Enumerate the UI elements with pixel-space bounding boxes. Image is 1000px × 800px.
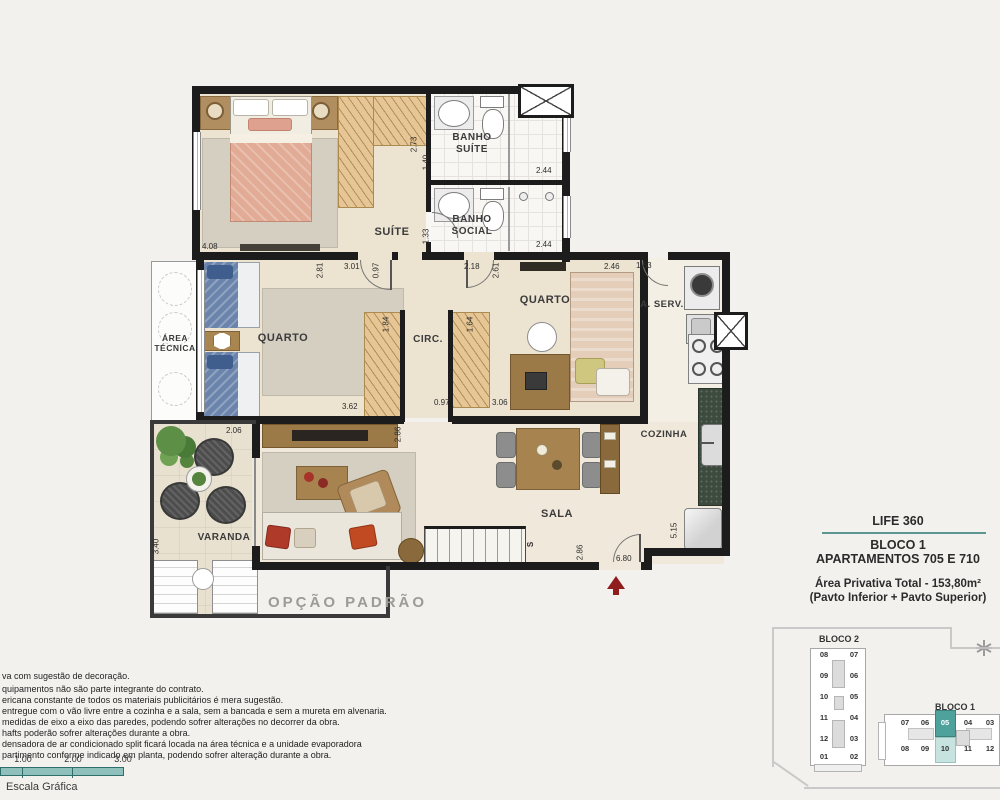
scale-bar — [0, 767, 124, 776]
private-area-text: Área Privativa Total - 153,80m² — [800, 578, 996, 590]
keyplan-core — [834, 696, 844, 710]
table-decor — [304, 472, 314, 482]
dim: 2.18 — [464, 262, 480, 271]
shower-partition — [508, 187, 510, 251]
quarto2-sideboard — [520, 262, 566, 271]
keyplan-unit: 11 — [960, 744, 976, 753]
room-label-varanda: VARANDA — [189, 532, 259, 544]
dim: 5.15 — [669, 523, 678, 539]
suite-pillow — [272, 99, 308, 116]
kitchen-faucet — [700, 442, 714, 444]
dining-chair — [496, 432, 516, 458]
keyplan-core — [832, 660, 845, 688]
room-label-sala: SALA — [522, 508, 592, 521]
option-label: OPÇÃO PADRÃO — [268, 594, 427, 611]
shower-head-icon — [519, 192, 528, 201]
quarto2-pillow — [596, 368, 630, 396]
room-label-quarto2: QUARTO — [510, 294, 580, 307]
shower-partition — [508, 94, 510, 180]
stairs-direction-label: S — [526, 542, 535, 547]
toilet-tank — [480, 188, 504, 200]
wall — [644, 548, 730, 556]
shaft-duct — [714, 312, 748, 350]
suite-sheet-fold — [230, 134, 312, 143]
dining-chair — [582, 462, 602, 488]
plant — [156, 426, 186, 456]
disclaimer-line: entregue com o vão livre entre a cozinha… — [2, 706, 387, 716]
dim: 1.84 — [381, 317, 390, 333]
wall — [400, 310, 405, 422]
dim: 2.86 — [393, 427, 402, 443]
shaft-duct — [518, 84, 574, 118]
scale-bar-tick — [22, 767, 23, 778]
suite-closet — [338, 96, 374, 208]
entry-arrow-icon — [613, 589, 619, 595]
dim: 3.01 — [344, 262, 360, 271]
site-boundary — [950, 627, 952, 649]
keyplan-unit: 03 — [846, 734, 862, 743]
wall — [256, 562, 646, 570]
keyplan-unit: 05 — [846, 692, 862, 701]
dim: 3.40 — [151, 539, 160, 555]
wall — [722, 252, 730, 556]
apartments-title: APARTAMENTOS 705 E 710 — [800, 552, 996, 566]
disclaimer-line: va com sugestão de decoração. — [2, 671, 130, 681]
dim: 0.97 — [434, 398, 450, 407]
dim: 2.61 — [491, 263, 500, 279]
suite-blanket — [230, 134, 312, 222]
keyplan-unit: 09 — [816, 671, 832, 680]
dim: 1.33 — [421, 229, 430, 245]
burner — [692, 339, 706, 353]
room-label-banho-social: BANHO SOCIAL — [442, 214, 502, 237]
room-label-suite: SUÍTE — [362, 226, 422, 239]
fridge — [684, 508, 722, 550]
entry-door-leaf — [639, 534, 641, 562]
suite-bench — [240, 244, 320, 251]
dim: 2.06 — [226, 426, 242, 435]
dim: 3.62 — [342, 402, 358, 411]
dim: 0.97 — [371, 263, 380, 279]
keyplan-core — [832, 720, 845, 748]
dim: 6.80 — [616, 554, 632, 563]
disclaimer-line: ericana constante de todos os materiais … — [2, 695, 283, 705]
wall — [640, 252, 648, 424]
keyplan-unit: 10 — [816, 692, 832, 701]
sofa-pillow — [265, 524, 292, 549]
bar-items — [604, 460, 616, 468]
wall — [431, 180, 562, 185]
desk-laptop — [525, 372, 547, 390]
dining-chair — [582, 432, 602, 458]
varanda-table-plant — [192, 472, 206, 486]
keyplan-unit: 06 — [846, 671, 862, 680]
balcony-wall — [150, 614, 390, 618]
room-label-banho-suite: BANHO SUÍTE — [442, 132, 502, 155]
dim: 4.08 — [202, 242, 218, 251]
keyplan-unit: 11 — [816, 713, 832, 722]
balcony-wall — [150, 420, 256, 424]
dim: 1.63 — [636, 261, 652, 270]
dim: 3.06 — [492, 398, 508, 407]
dim: 2.86 — [575, 545, 584, 561]
keyplan-unit: 03 — [982, 718, 998, 727]
suite-accent-pillow — [248, 118, 292, 131]
lounger-table — [192, 568, 214, 590]
door-gap — [358, 252, 392, 260]
site-boundary — [773, 761, 809, 787]
keyplan-unit: 07 — [846, 650, 862, 659]
shower-head-icon — [545, 192, 554, 201]
site-boundary — [772, 627, 774, 767]
desk-chair — [527, 322, 557, 352]
dim: 2.44 — [536, 240, 552, 249]
dining-decor — [552, 460, 562, 470]
stairs — [424, 526, 526, 566]
disclaimer-line: partimento conforme indicado em planta, … — [2, 750, 331, 760]
keyplan-slab — [908, 728, 934, 740]
keyplan-bloco2-base — [814, 764, 862, 772]
tv — [292, 430, 368, 441]
compass-icon — [976, 640, 992, 656]
dining-chair — [496, 462, 516, 488]
suite-lamp — [312, 102, 330, 120]
floors-text: (Pavto Inferior + Pavto Superior) — [800, 592, 996, 604]
scale-tick-label: 2.00 — [58, 754, 88, 764]
wall — [192, 86, 570, 94]
keyplan-bloco2-label: BLOCO 2 — [800, 634, 878, 644]
accent-rule — [822, 532, 986, 534]
door-gap — [464, 252, 494, 260]
sofa-pillow — [294, 528, 316, 548]
keyplan-unit: 08 — [816, 650, 832, 659]
table-decor — [318, 478, 328, 488]
varanda-chair — [206, 486, 246, 524]
keyplan-unit: 07 — [897, 718, 913, 727]
wall — [452, 416, 644, 424]
room-label-cozinha: COZINHA — [634, 430, 694, 441]
keyplan-unit-highlight: 05 — [937, 718, 953, 727]
twin-bed-pillow — [207, 355, 233, 369]
room-label-quarto1: QUARTO — [248, 332, 318, 345]
keyplan-unit: 12 — [982, 744, 998, 753]
room-label-aserv: A. SERV. — [632, 300, 692, 311]
block-title: BLOCO 1 — [800, 538, 996, 552]
scale-tick-label: 3.00 — [108, 754, 138, 764]
disclaimer-line: quipamentos não são parte integrante do … — [2, 684, 204, 694]
burner — [692, 362, 706, 376]
banho-suite-sink — [438, 100, 470, 127]
dim: 2.73 — [409, 137, 418, 153]
sofa-pillow — [348, 524, 377, 550]
hex-pattern — [158, 272, 192, 306]
brand-title: LIFE 360 — [800, 514, 996, 528]
window — [193, 132, 201, 210]
lounger — [152, 560, 198, 614]
keyplan-unit: 06 — [917, 718, 933, 727]
scale-bar-tick — [72, 767, 73, 778]
room-label-circ: CIRC. — [404, 334, 452, 346]
keyplan-unit: 08 — [897, 744, 913, 753]
hex-pattern — [158, 372, 192, 406]
suite-lamp — [206, 102, 224, 120]
window — [563, 196, 571, 238]
wall — [668, 252, 730, 260]
bar-items — [604, 432, 616, 440]
door-leaf — [390, 260, 392, 290]
dining-table — [516, 428, 580, 490]
floorplan-page: SUÍTE BANHO SUÍTE BANHO SOCIAL QUARTO QU… — [0, 0, 1000, 800]
entry-door-gap — [599, 562, 641, 570]
keyplan-unit: 02 — [846, 752, 862, 761]
site-boundary — [804, 787, 1000, 789]
keyplan-unit: 04 — [846, 713, 862, 722]
site-boundary — [772, 627, 952, 629]
keyplan-unit: 01 — [816, 752, 832, 761]
keyplan-unit: 09 — [917, 744, 933, 753]
dim: 2.46 — [604, 262, 620, 271]
keyplan-unit: 04 — [960, 718, 976, 727]
dim: 1.64 — [465, 317, 474, 333]
toilet-tank — [480, 96, 504, 108]
keyplan-bloco1-wing — [878, 722, 886, 760]
scale-tick-label: 1.00 — [8, 754, 38, 764]
keyplan-unit: 12 — [816, 734, 832, 743]
keyplan-unit-highlight: 10 — [937, 744, 953, 753]
disclaimer-line: medidas de eixo a eixo das paredes, pode… — [2, 717, 340, 727]
site-boundary — [950, 647, 1000, 649]
twin-bed-pillow — [207, 265, 233, 279]
balcony-wall — [150, 420, 154, 618]
disclaimer-line: densadora de ar condicionado split ficar… — [2, 739, 362, 749]
entry-arrow-icon — [607, 576, 625, 589]
washer-drum — [690, 273, 714, 297]
door-gap — [398, 252, 422, 260]
dining-decor — [536, 444, 548, 456]
side-table-round — [398, 538, 424, 564]
disclaimer-line: hafts poderão sofrer alterações durante … — [2, 728, 190, 738]
scale-label: Escala Gráfica — [6, 781, 78, 793]
suite-pillow — [233, 99, 269, 116]
dim: 2.44 — [536, 166, 552, 175]
dim: 2.81 — [315, 263, 324, 279]
dim: 1.40 — [421, 155, 430, 171]
room-label-area-tecnica: ÁREA TÉCNICA — [149, 334, 201, 354]
